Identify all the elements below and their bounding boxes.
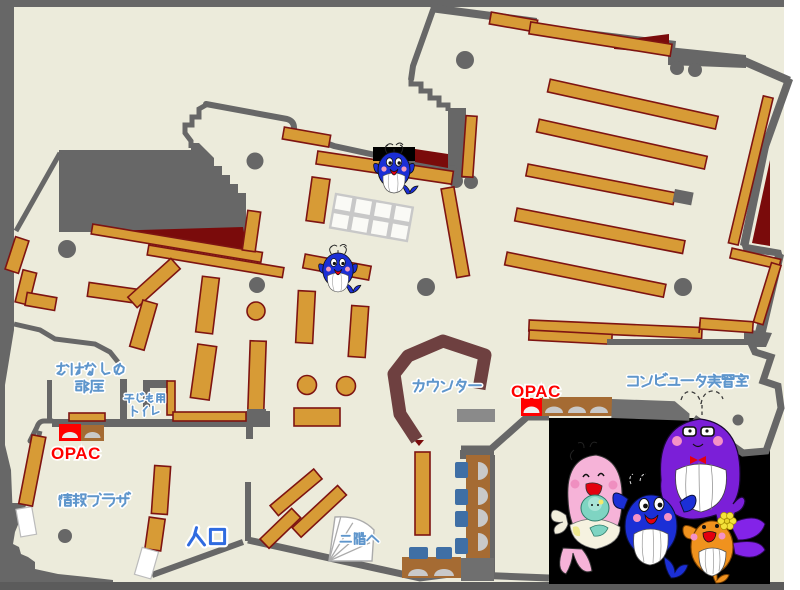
svg-text:OPAC: OPAC: [51, 444, 101, 463]
svg-text:OPAC: OPAC: [511, 382, 561, 401]
